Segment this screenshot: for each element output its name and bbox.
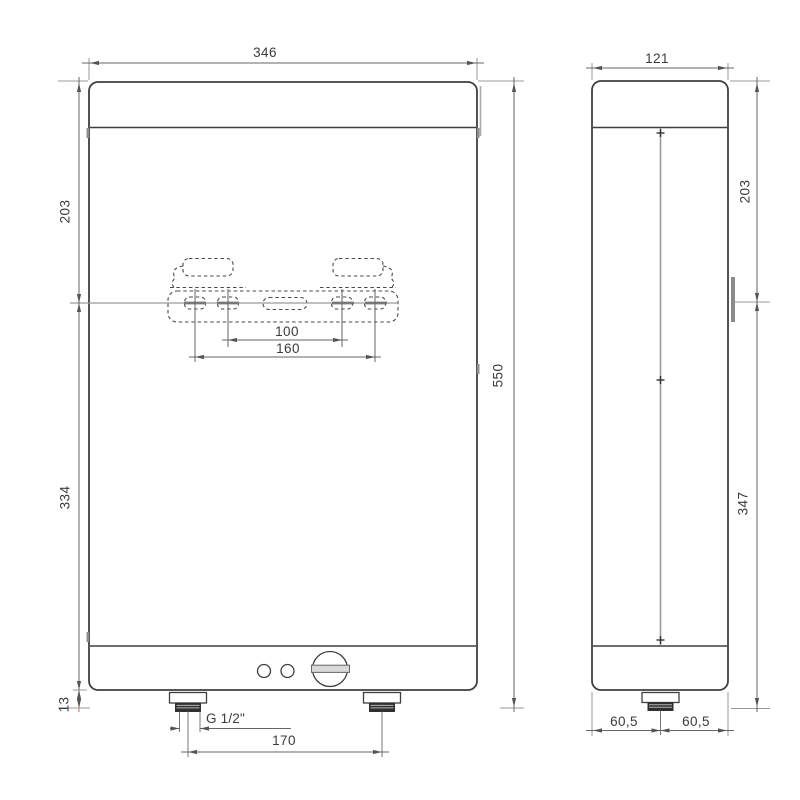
dim-side-depth: 121	[627, 51, 687, 66]
indicator-light-icon	[258, 665, 271, 678]
dim-bracket-outer: 160	[258, 341, 318, 356]
dim-side-upper-height: 203	[738, 162, 753, 222]
dim-side-lower-height: 347	[736, 473, 751, 533]
technical-drawing: 346 121 203 334 13 550 100 160 G 1/2" 17…	[0, 0, 800, 800]
wall-bracket-tab	[731, 277, 735, 322]
front-pipe-left	[170, 693, 207, 758]
dim-front-bottom-clearance: 13	[57, 674, 72, 734]
dim-front-total-height: 550	[491, 345, 506, 405]
dim-front-width: 346	[235, 45, 295, 60]
dim-side-pipe-offset-right: 60,5	[666, 714, 726, 729]
dim-side-pipe-offset-left: 60,5	[594, 714, 654, 729]
dim-bracket-inner: 100	[257, 324, 317, 339]
dim-pipe-spacing: 170	[254, 733, 314, 748]
indicator-light-icon	[281, 665, 294, 678]
front-body-outline	[89, 82, 477, 690]
knob-slot	[312, 665, 350, 672]
dim-front-lower-height: 334	[57, 467, 72, 527]
side-view	[592, 81, 735, 735]
dim-front-upper-height: 203	[57, 181, 72, 241]
drawing-linework	[0, 0, 800, 800]
front-view	[88, 82, 481, 757]
dim-pipe-thread: G 1/2"	[206, 711, 266, 726]
front-pipe-right	[364, 693, 401, 758]
